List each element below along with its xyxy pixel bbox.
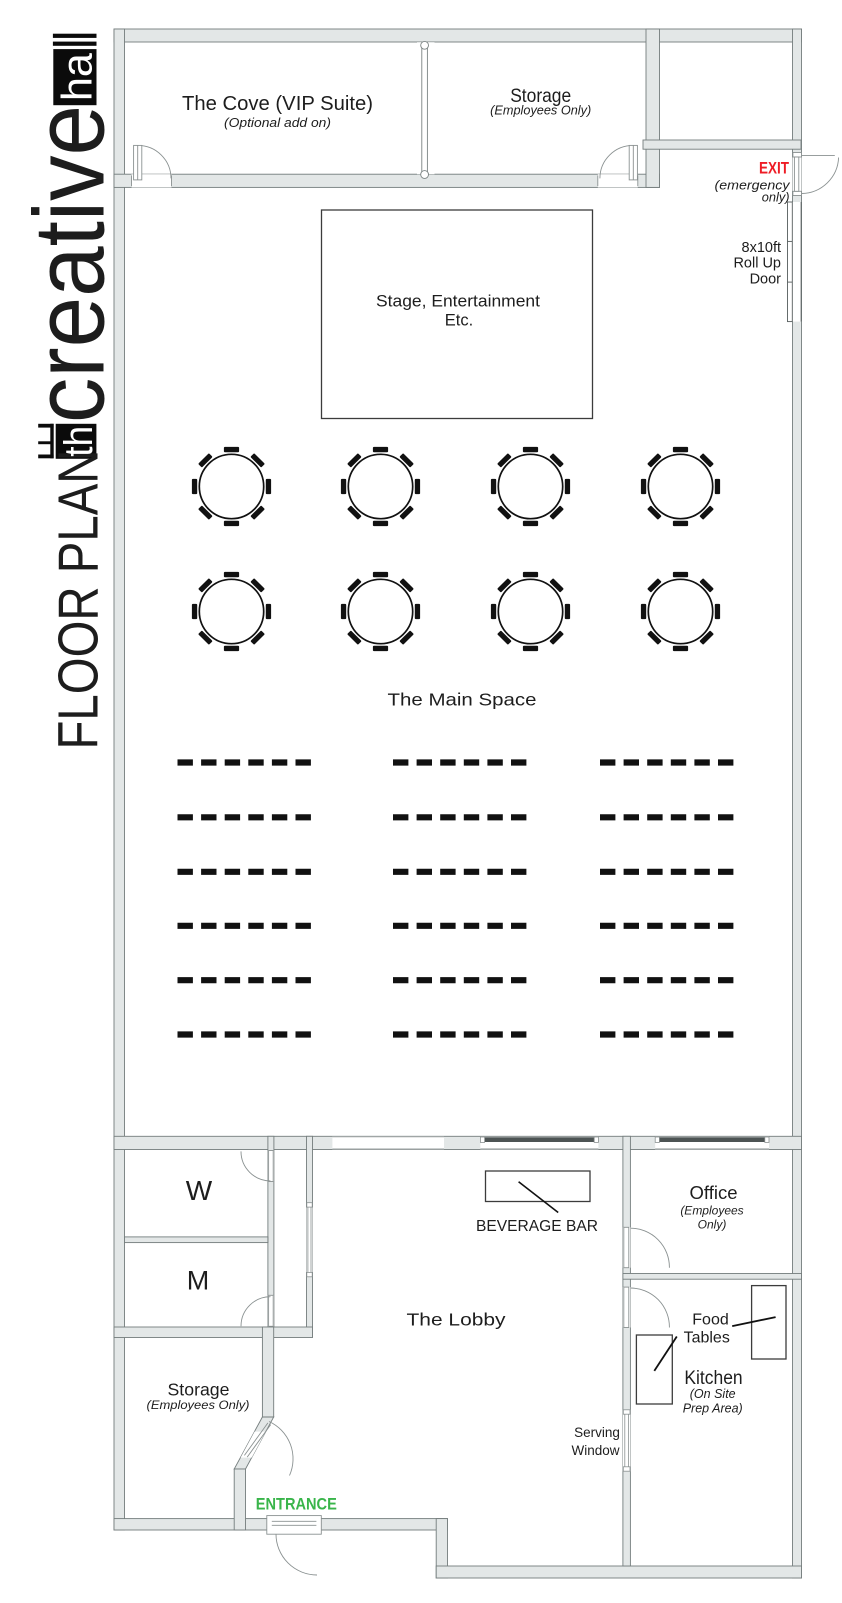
svg-text:W: W <box>186 1175 213 1206</box>
svg-text:8x10ft: 8x10ft <box>742 240 782 256</box>
svg-text:(Employees: (Employees <box>680 1204 743 1218</box>
svg-text:BEVERAGE BAR: BEVERAGE BAR <box>476 1218 598 1235</box>
svg-text:(Employees Only): (Employees Only) <box>490 104 591 118</box>
svg-text:(Employees Only): (Employees Only) <box>147 1398 250 1412</box>
svg-text:(Optional add on): (Optional add on) <box>224 115 331 130</box>
svg-text:Roll Up: Roll Up <box>733 256 781 272</box>
svg-text:Storage: Storage <box>168 1380 230 1400</box>
svg-text:The Main Space: The Main Space <box>388 689 537 709</box>
svg-text:ENTRANCE: ENTRANCE <box>256 1495 337 1514</box>
svg-text:Office: Office <box>690 1182 738 1203</box>
svg-text:Door: Door <box>750 272 782 288</box>
svg-text:(On Site: (On Site <box>690 1387 736 1401</box>
svg-text:Serving: Serving <box>574 1425 620 1440</box>
svg-text:Etc.: Etc. <box>445 312 473 330</box>
svg-text:EXIT: EXIT <box>759 160 789 178</box>
svg-text:Food: Food <box>692 1312 728 1329</box>
svg-text:The Lobby: The Lobby <box>407 1310 506 1330</box>
svg-text:ha: ha <box>54 53 102 101</box>
svg-text:Window: Window <box>571 1443 619 1458</box>
svg-text:Tables: Tables <box>684 1330 730 1347</box>
svg-text:M: M <box>187 1266 210 1296</box>
svg-text:Kitchen: Kitchen <box>684 1368 742 1389</box>
svg-text:FLOOR PLAN: FLOOR PLAN <box>47 450 111 750</box>
svg-text:creative: creative <box>14 105 126 423</box>
svg-text:Prep Area): Prep Area) <box>683 1401 743 1415</box>
svg-text:The Cove (VIP Suite): The Cove (VIP Suite) <box>182 93 373 115</box>
svg-text:only): only) <box>762 190 790 205</box>
svg-text:Stage, Entertainment: Stage, Entertainment <box>376 292 540 310</box>
svg-text:Only): Only) <box>698 1218 727 1232</box>
svg-text:th: th <box>57 426 101 457</box>
